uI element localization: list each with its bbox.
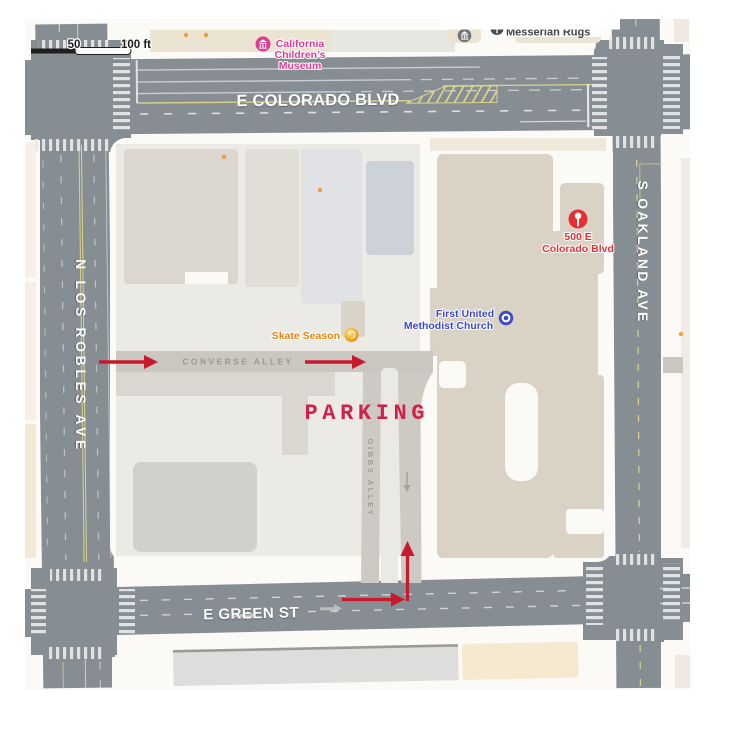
- svg-text:50: 50: [68, 39, 81, 51]
- svg-text:Skate Season: Skate Season: [272, 330, 340, 342]
- svg-text:E GREEN ST: E GREEN ST: [203, 604, 299, 623]
- svg-text:S OAKLAND AVE: S OAKLAND AVE: [635, 181, 651, 324]
- svg-text:Methodist Church: Methodist Church: [404, 320, 493, 332]
- svg-text:First United: First United: [436, 308, 494, 320]
- svg-text:GIBBS ALLEY: GIBBS ALLEY: [366, 439, 375, 518]
- svg-text:CONVERSE ALLEY: CONVERSE ALLEY: [182, 357, 293, 367]
- svg-text:Museum: Museum: [279, 60, 322, 72]
- svg-text:500 E: 500 E: [564, 231, 591, 243]
- svg-text:100 ft: 100 ft: [121, 39, 151, 51]
- svg-text:N LOS ROBLES AVE: N LOS ROBLES AVE: [73, 259, 89, 453]
- svg-text:Colorado Blvd: Colorado Blvd: [542, 243, 614, 255]
- svg-text:PARKING: PARKING: [305, 401, 430, 426]
- svg-text:E COLORADO BLVD: E COLORADO BLVD: [236, 91, 399, 110]
